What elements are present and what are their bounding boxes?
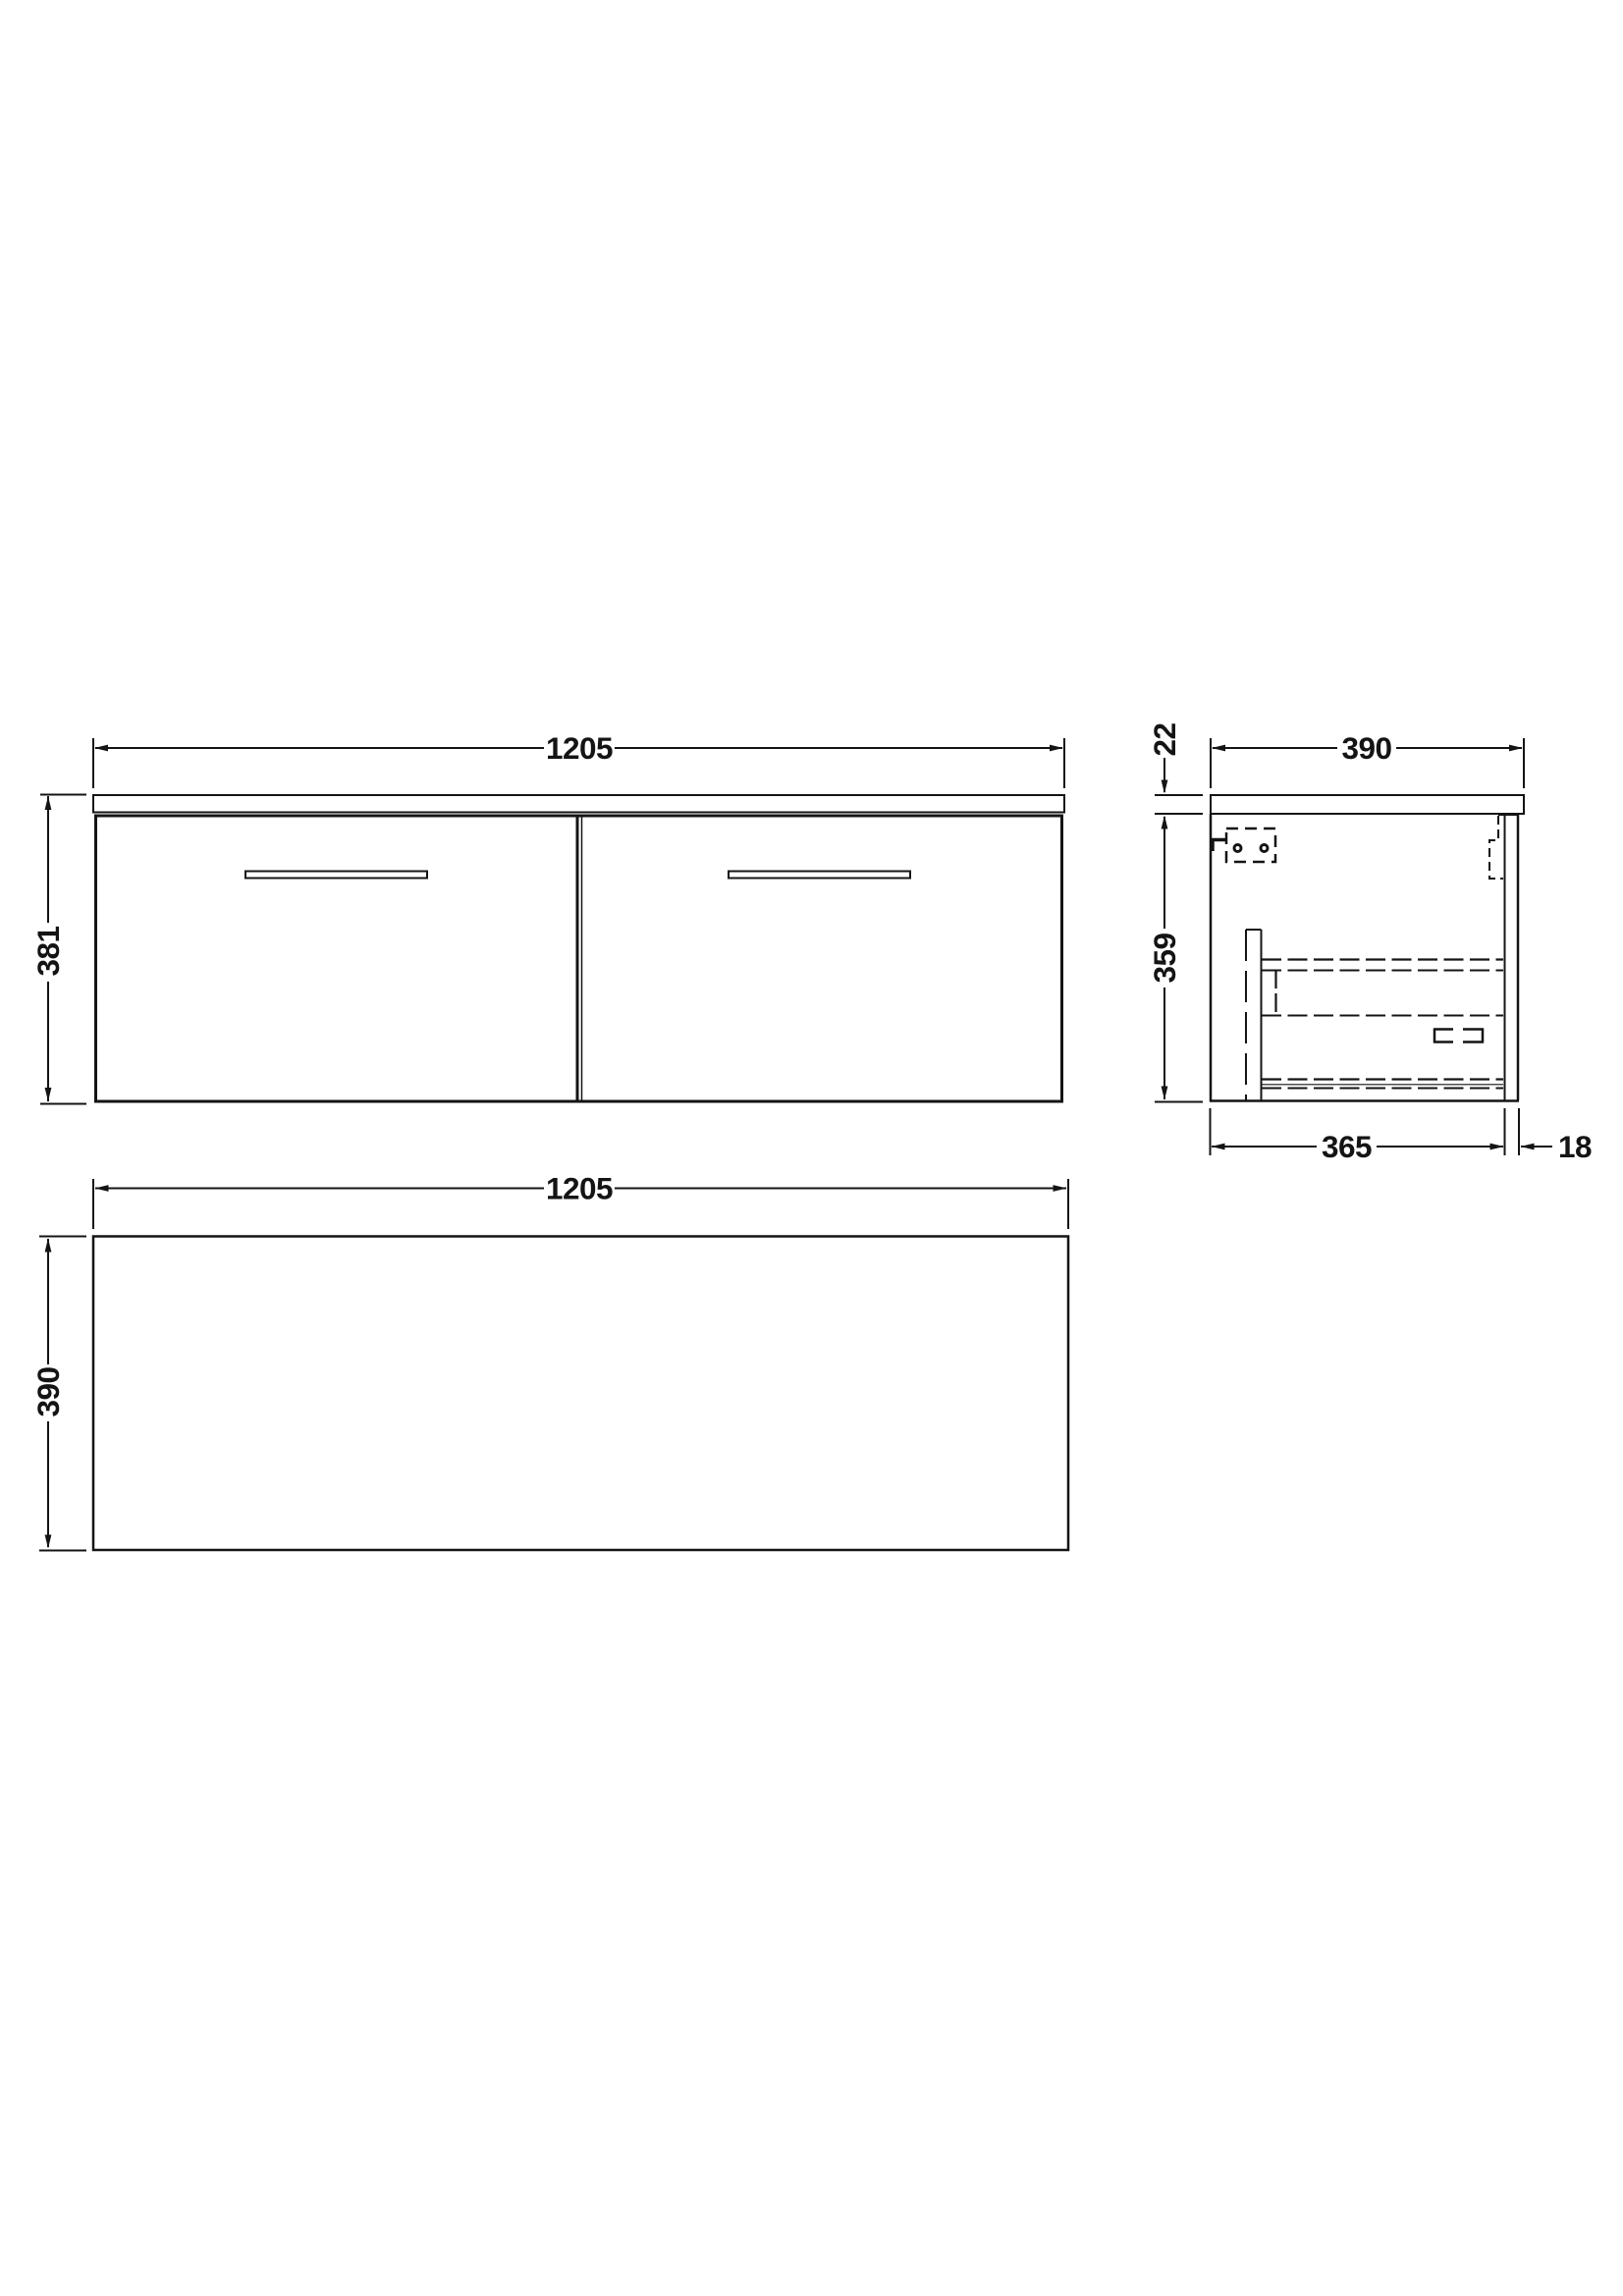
svg-text:22: 22 xyxy=(1147,722,1182,756)
svg-text:390: 390 xyxy=(30,1366,66,1416)
svg-text:1205: 1205 xyxy=(546,1171,613,1206)
svg-text:18: 18 xyxy=(1558,1129,1592,1164)
svg-text:381: 381 xyxy=(30,926,66,976)
svg-text:1205: 1205 xyxy=(546,730,613,766)
svg-text:365: 365 xyxy=(1322,1129,1372,1164)
svg-text:359: 359 xyxy=(1147,933,1182,983)
svg-text:390: 390 xyxy=(1341,730,1391,766)
